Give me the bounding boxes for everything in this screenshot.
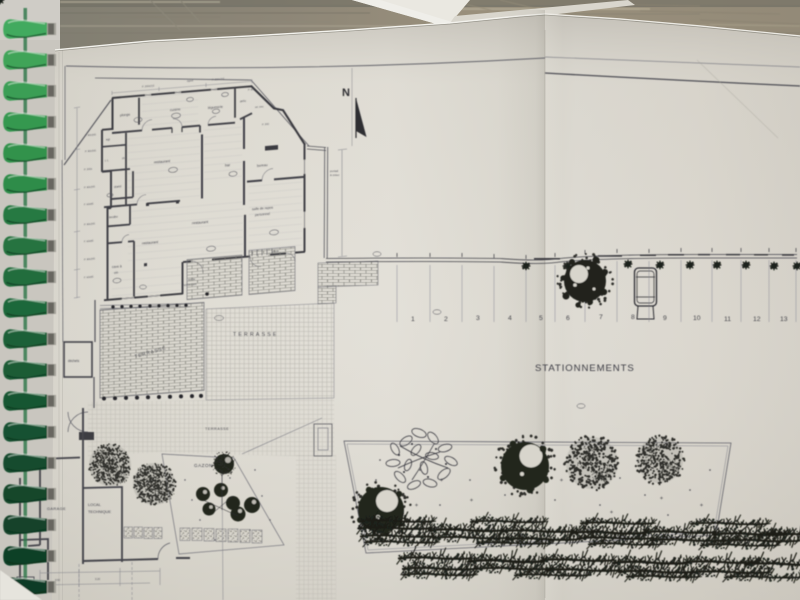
- svg-text:3: 3: [476, 315, 480, 322]
- svg-text:13: 13: [780, 316, 788, 323]
- svg-text:6: 6: [566, 315, 570, 322]
- svg-text:TERRASSE: TERRASSE: [233, 332, 279, 338]
- svg-text:l. t.: l. t.: [105, 158, 109, 162]
- svg-text:P. 200: P. 200: [262, 123, 270, 127]
- svg-text:vin: vin: [114, 270, 118, 274]
- svg-text:2: 2: [444, 316, 448, 323]
- svg-text:bar: bar: [225, 163, 231, 167]
- svg-text:cave à: cave à: [112, 264, 122, 269]
- svg-text:P. 90: P. 90: [248, 88, 254, 92]
- svg-text:stand: stand: [114, 184, 122, 189]
- svg-text:5: 5: [539, 315, 543, 322]
- svg-text:4: 4: [508, 315, 512, 322]
- svg-text:LOCAL: LOCAL: [88, 502, 102, 507]
- svg-text:7: 7: [599, 314, 603, 321]
- svg-text:lavabo: lavabo: [109, 214, 118, 219]
- svg-text:1: 1: [411, 316, 415, 323]
- svg-text:9: 9: [663, 315, 667, 322]
- svg-text:arriv.: arriv.: [240, 99, 247, 104]
- svg-text:GARAGE: GARAGE: [47, 506, 66, 511]
- svg-text:12: 12: [753, 316, 761, 323]
- svg-text:à créer: à créer: [330, 173, 339, 177]
- svg-text:N: N: [342, 87, 350, 99]
- svg-text:10: 10: [693, 315, 701, 322]
- svg-text:11: 11: [724, 316, 731, 323]
- svg-text:STATIONNEMENTS: STATIONNEMENTS: [535, 363, 635, 374]
- svg-text:8: 8: [631, 314, 635, 321]
- svg-text:égout: égout: [187, 79, 194, 83]
- svg-text:3.20: 3.20: [95, 577, 101, 581]
- svg-text:déchets: déchets: [68, 359, 80, 363]
- svg-text:TERRASSE: TERRASSE: [205, 426, 229, 431]
- svg-text:egt: egt: [106, 137, 110, 141]
- svg-text:GAZON: GAZON: [194, 463, 213, 468]
- svg-text:TECHNIQUE: TECHNIQUE: [88, 509, 111, 514]
